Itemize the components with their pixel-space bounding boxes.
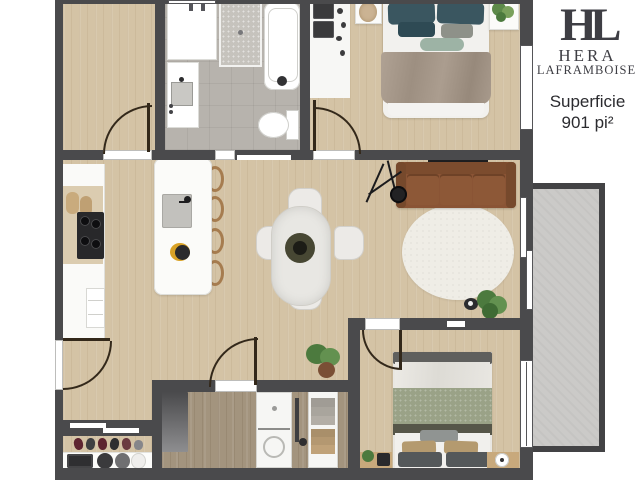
- bedroom1-bed: [383, 0, 489, 118]
- utility-broom: [295, 398, 299, 442]
- washer-dryer-stack: [256, 392, 292, 468]
- area-value: 901 pi²: [535, 114, 640, 131]
- closet-drawer: [313, 2, 334, 19]
- sofa: [396, 162, 516, 208]
- brand-name-line2: LAFRAMBOISE: [533, 64, 640, 77]
- washer-knob: [272, 406, 277, 411]
- dryer-drum: [263, 436, 285, 458]
- storage-basket-gray: [311, 398, 335, 425]
- folded-blanket: [395, 362, 490, 390]
- balcony-sliding-door: [520, 197, 527, 258]
- closet-item: [340, 50, 345, 56]
- closet-item: [336, 36, 342, 41]
- pillow-charcoal: [398, 452, 442, 467]
- burner: [80, 216, 90, 226]
- sofa-cushion: [473, 174, 505, 205]
- cooktop: [77, 212, 104, 259]
- balcony-sliding-door: [526, 250, 533, 310]
- basket-white: [131, 453, 146, 469]
- sofa-back: [404, 162, 508, 174]
- wall-left: [55, 0, 63, 480]
- bathroom-sink-counter: [167, 62, 199, 128]
- table-centerpiece-bowl: [293, 241, 307, 255]
- wall-bottom: [55, 468, 533, 480]
- nightstand-speaker-center: [500, 458, 504, 462]
- duvet-taupe: [381, 52, 491, 104]
- bed-sheet: [388, 103, 484, 116]
- basket-gray: [115, 453, 130, 469]
- bedroom2-bed: [393, 352, 492, 468]
- storage-basket-woven: [311, 429, 335, 454]
- closet-item: [337, 8, 343, 14]
- cutting-board: [66, 192, 79, 214]
- balcony: [533, 183, 605, 452]
- burner: [80, 236, 90, 246]
- cabinet-line: [88, 300, 103, 301]
- duvet-sage: [393, 388, 492, 428]
- side-table-candle: [468, 301, 473, 306]
- wall-hall-a: [63, 150, 103, 160]
- window-bedroom2: [520, 360, 533, 448]
- pocket-door-bathroom: [237, 155, 291, 160]
- floor-lamp-shade: [390, 186, 407, 203]
- window-bathroom: [168, 0, 216, 4]
- basket-dark: [97, 453, 113, 469]
- bolster-pillow-sage: [420, 38, 464, 51]
- fruit-bowl-center: [175, 245, 190, 260]
- burner: [91, 239, 101, 249]
- floorplan-canvas: HL HERA LAFRAMBOISE Superficie 901 pi²: [0, 0, 640, 480]
- area-label: Superficie: [535, 93, 640, 110]
- wall-bathroom-left: [155, 0, 165, 160]
- closet-sliding-door: [70, 423, 106, 428]
- toiletry-bottle: [169, 104, 173, 108]
- brand-name-line1: HERA: [535, 47, 640, 64]
- sofa-cushion: [407, 174, 439, 205]
- wall-bathroom-right: [300, 0, 310, 160]
- pillow-teal: [437, 1, 485, 25]
- doorway-bathroom: [215, 150, 235, 160]
- accent-pillow-gray: [441, 24, 473, 38]
- sofa-cushion: [440, 174, 472, 205]
- vanity-faucet: [201, 3, 205, 11]
- window-mullion: [526, 47, 527, 128]
- laundry-shelf: [308, 388, 338, 468]
- brand-monogram: HL: [535, 2, 640, 49]
- wall-laundry-left: [152, 380, 162, 480]
- entry-wardrobe: [158, 392, 188, 452]
- burner: [91, 219, 101, 229]
- closet-item: [341, 22, 346, 28]
- kitchen-sink-base: [86, 288, 105, 328]
- area-rug: [402, 204, 514, 300]
- dried-plant: [359, 2, 377, 22]
- wall-top: [55, 0, 533, 4]
- nightstand-tablet: [377, 453, 390, 466]
- toiletry-bottle: [169, 110, 173, 114]
- wall-hall-b: [152, 150, 215, 160]
- doorway-bedroom2: [365, 318, 400, 330]
- utility-item: [299, 438, 307, 446]
- toilet-bowl: [258, 112, 289, 138]
- bathtub-faucet: [277, 76, 287, 86]
- cabinet-line: [88, 314, 103, 315]
- shoe: [97, 438, 107, 451]
- closet-drawer: [313, 21, 334, 38]
- appliance-divider: [258, 428, 290, 430]
- sink-basin: [171, 82, 193, 106]
- shower: [219, 2, 262, 67]
- flower-plant: [496, 12, 506, 22]
- sink-faucet: [179, 77, 184, 82]
- dining-chair: [334, 226, 364, 260]
- wall-hall-d: [355, 150, 520, 160]
- nightstand-plant: [362, 450, 374, 462]
- hall-plant-pot: [318, 362, 335, 378]
- closet-sliding-door: [103, 428, 139, 433]
- shower-drain: [238, 30, 243, 35]
- sofa-arm: [506, 162, 516, 208]
- bathtub: [264, 2, 300, 90]
- window-mullion: [526, 362, 527, 446]
- bathtub-basin: [268, 8, 298, 82]
- potted-plant: [482, 303, 498, 319]
- console-tray: [67, 454, 93, 468]
- island-faucet-stem: [179, 201, 187, 203]
- accent-pillow-teal: [398, 22, 435, 37]
- wall-niche: [447, 321, 465, 327]
- vanity-faucet: [189, 3, 193, 11]
- window-bedroom1: [520, 45, 533, 130]
- pillow-charcoal: [446, 452, 490, 467]
- wall-bedroom2-left: [348, 318, 360, 468]
- doorway-entry: [55, 340, 63, 390]
